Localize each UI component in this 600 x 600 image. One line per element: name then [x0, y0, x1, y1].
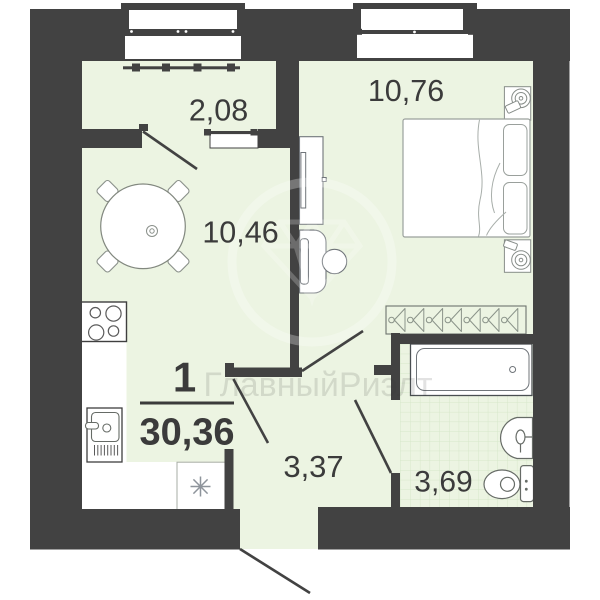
svg-text:2,08: 2,08	[189, 94, 248, 128]
svg-text:1: 1	[173, 354, 196, 401]
svg-text:10,76: 10,76	[368, 74, 444, 108]
svg-text:30,36: 30,36	[139, 412, 234, 454]
svg-text:10,46: 10,46	[202, 216, 278, 250]
svg-text:ГлавныйРиэлт: ГлавныйРиэлт	[203, 366, 432, 404]
svg-text:3,69: 3,69	[414, 466, 472, 499]
svg-text:3,37: 3,37	[283, 449, 343, 484]
